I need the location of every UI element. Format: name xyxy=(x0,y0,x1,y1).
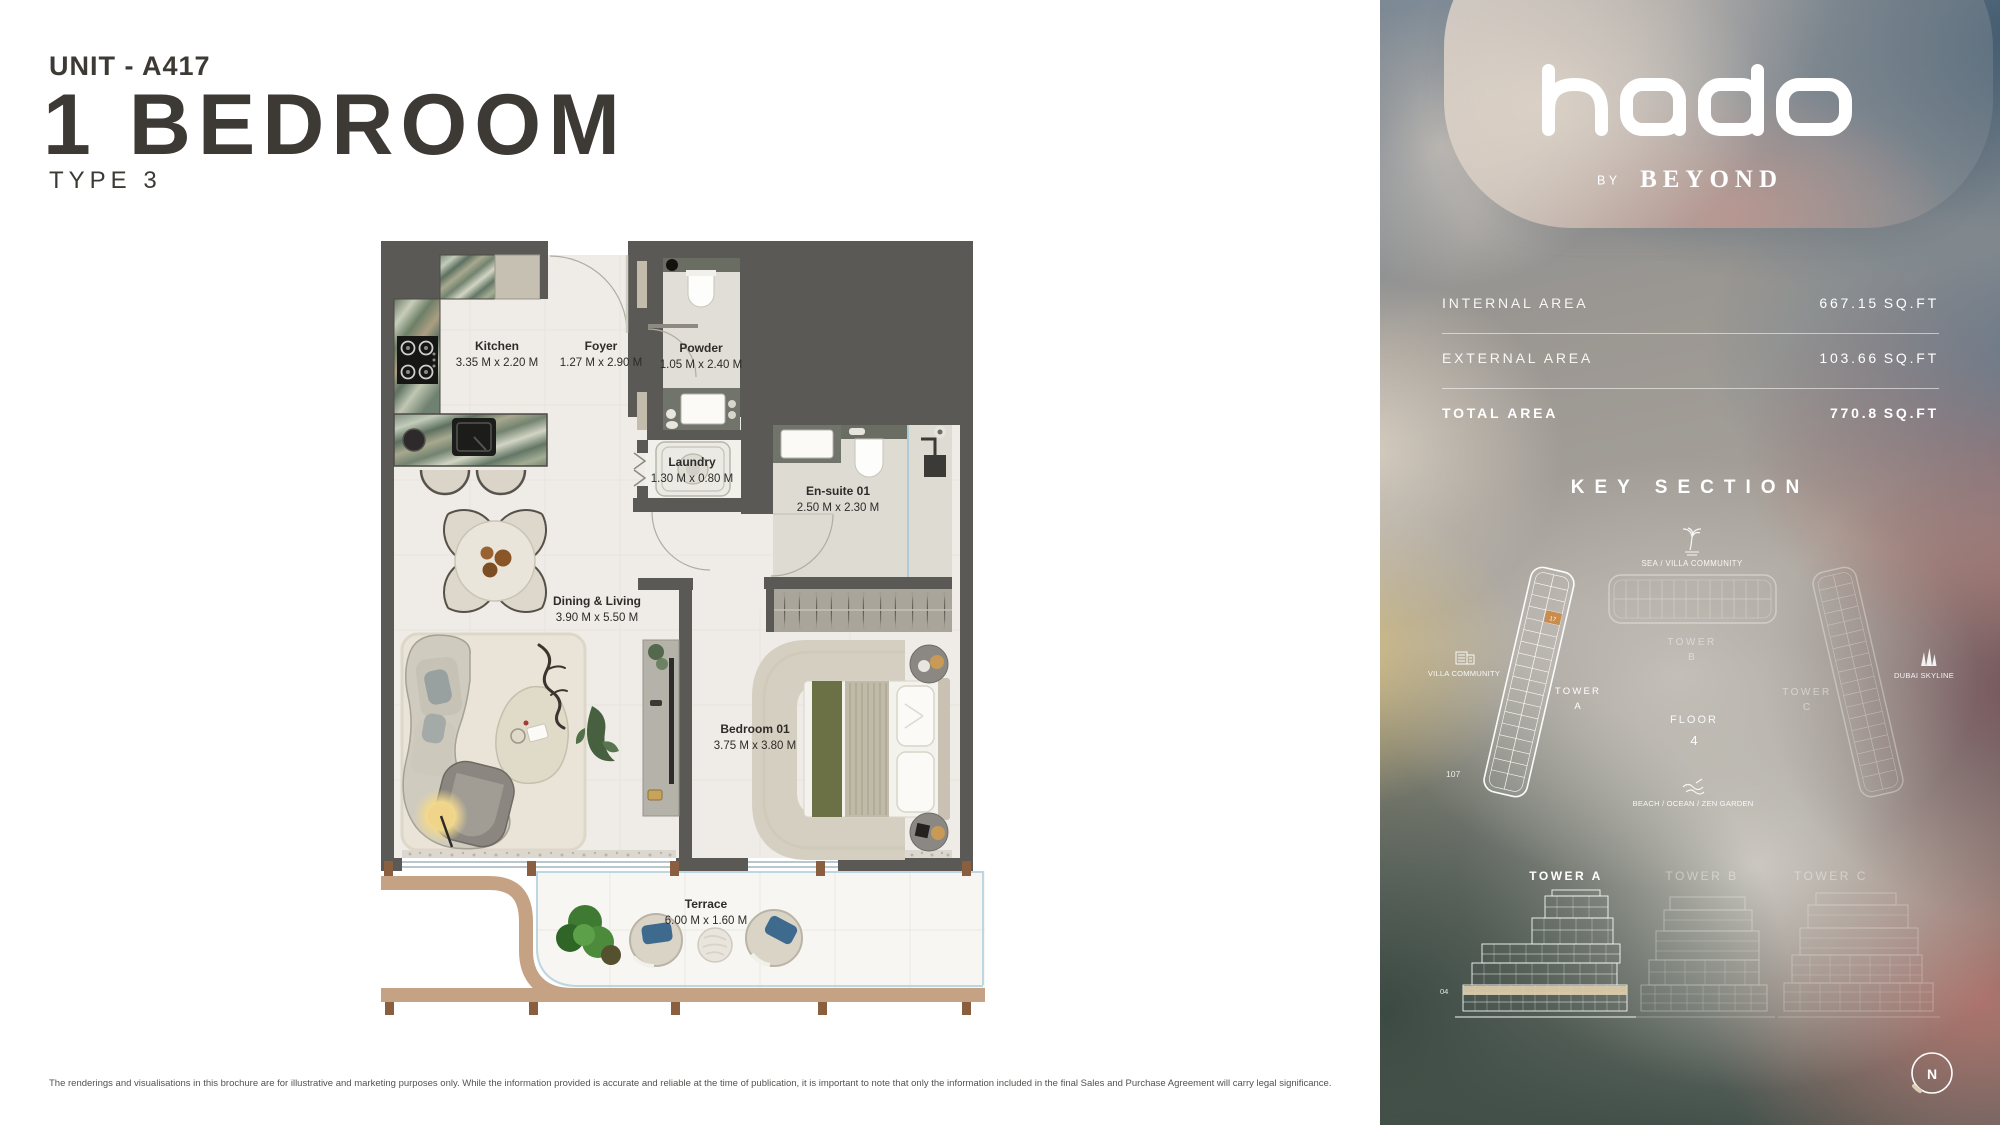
svg-text:TOWER C: TOWER C xyxy=(1794,869,1868,883)
svg-text:1.27 M x 2.90 M: 1.27 M x 2.90 M xyxy=(560,357,642,369)
svg-text:1.30 M x 0.80 M: 1.30 M x 0.80 M xyxy=(651,473,733,485)
svg-text:2.50 M x 2.30 M: 2.50 M x 2.30 M xyxy=(797,502,879,514)
svg-text:Terrace: Terrace xyxy=(685,897,728,911)
svg-text:3.35 M x 2.20 M: 3.35 M x 2.20 M xyxy=(456,357,538,369)
svg-text:107: 107 xyxy=(1446,769,1460,779)
svg-text:Laundry: Laundry xyxy=(668,455,716,469)
svg-text:Foyer: Foyer xyxy=(585,339,618,353)
svg-text:6.00 M x 1.60 M: 6.00 M x 1.60 M xyxy=(665,915,747,927)
svg-text:DUBAI SKYLINE: DUBAI SKYLINE xyxy=(1894,671,1954,680)
svg-text:TOWER B: TOWER B xyxy=(1665,869,1738,883)
svg-text:TOWER A: TOWER A xyxy=(1529,869,1603,883)
svg-text:FLOOR: FLOOR xyxy=(1670,714,1718,726)
svg-text:Bedroom 01: Bedroom 01 xyxy=(720,722,790,736)
svg-text:4: 4 xyxy=(1690,733,1697,748)
svg-text:04: 04 xyxy=(1440,987,1448,996)
svg-text:TOWER: TOWER xyxy=(1667,637,1717,648)
svg-text:BEACH / OCEAN / ZEN GARDEN: BEACH / OCEAN / ZEN GARDEN xyxy=(1633,799,1754,808)
svg-text:VILLA COMMUNITY: VILLA COMMUNITY xyxy=(1428,669,1500,678)
svg-text:En-suite 01: En-suite 01 xyxy=(806,484,870,498)
svg-text:N: N xyxy=(1927,1066,1937,1082)
svg-text:Kitchen: Kitchen xyxy=(475,339,519,353)
svg-text:A: A xyxy=(1574,701,1581,712)
svg-text:B: B xyxy=(1688,652,1696,663)
svg-text:1.05 M x 2.40 M: 1.05 M x 2.40 M xyxy=(660,359,742,371)
svg-text:TOWER: TOWER xyxy=(1555,686,1601,697)
svg-text:Powder: Powder xyxy=(679,341,723,355)
svg-text:TOWER: TOWER xyxy=(1782,687,1832,698)
svg-text:SEA / VILLA COMMUNITY: SEA / VILLA COMMUNITY xyxy=(1641,559,1743,568)
svg-text:3.75 M x 3.80 M: 3.75 M x 3.80 M xyxy=(714,740,796,752)
svg-text:3.90 M x 5.50 M: 3.90 M x 5.50 M xyxy=(556,612,638,624)
svg-text:Dining & Living: Dining & Living xyxy=(553,594,641,608)
svg-text:C: C xyxy=(1803,702,1811,713)
